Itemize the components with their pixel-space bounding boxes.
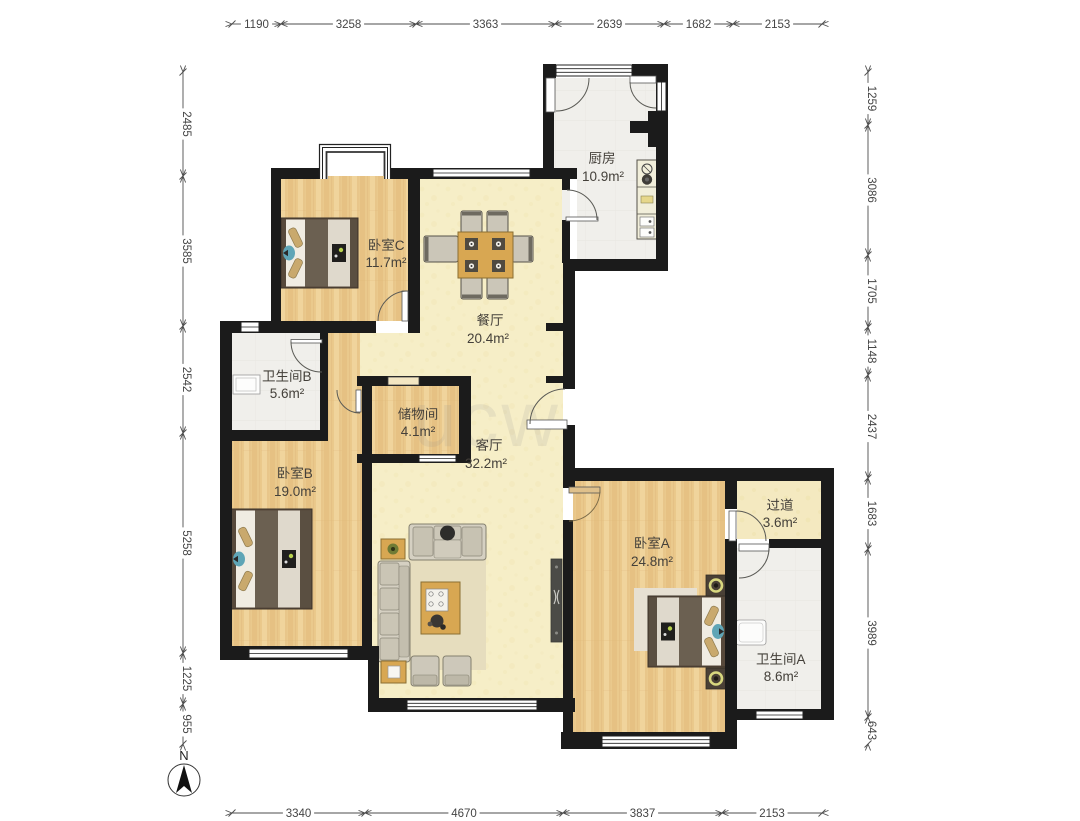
svg-text:11.7m²: 11.7m² <box>365 255 407 270</box>
svg-text:1682: 1682 <box>686 19 712 31</box>
svg-text:3086: 3086 <box>865 177 877 203</box>
svg-text:1190: 1190 <box>244 19 269 31</box>
svg-text:8.6m²: 8.6m² <box>764 669 799 684</box>
svg-text:32.2m²: 32.2m² <box>465 456 508 471</box>
svg-text:3363: 3363 <box>473 19 499 31</box>
svg-text:955: 955 <box>180 714 192 733</box>
svg-text:20.4m²: 20.4m² <box>467 331 510 346</box>
svg-text:3258: 3258 <box>336 19 362 31</box>
svg-text:10.9m²: 10.9m² <box>582 169 625 184</box>
svg-text:24.8m²: 24.8m² <box>631 554 674 569</box>
svg-text:1148: 1148 <box>865 339 877 364</box>
svg-text:5258: 5258 <box>180 530 192 556</box>
svg-text:2437: 2437 <box>865 414 877 440</box>
svg-text:2153: 2153 <box>765 19 791 31</box>
svg-text:5.6m²: 5.6m² <box>270 386 305 401</box>
svg-text:3837: 3837 <box>630 808 656 820</box>
svg-text:2639: 2639 <box>597 19 623 31</box>
svg-text:3989: 3989 <box>865 620 877 646</box>
svg-text:2485: 2485 <box>180 111 192 137</box>
svg-text:2153: 2153 <box>759 808 785 820</box>
svg-text:643: 643 <box>865 721 877 740</box>
svg-text:1683: 1683 <box>865 501 877 527</box>
svg-text:A: A <box>661 536 670 551</box>
svg-text:C: C <box>395 238 405 253</box>
svg-text:4.1m²: 4.1m² <box>401 424 436 439</box>
svg-text:1259: 1259 <box>865 86 877 112</box>
svg-text:3340: 3340 <box>286 808 312 820</box>
svg-text:B: B <box>303 369 312 384</box>
svg-text:3585: 3585 <box>180 238 192 264</box>
svg-text:B: B <box>304 466 313 481</box>
svg-text:19.0m²: 19.0m² <box>274 484 317 499</box>
svg-text:3.6m²: 3.6m² <box>763 515 798 530</box>
svg-text:2542: 2542 <box>180 367 192 393</box>
svg-text:4670: 4670 <box>451 808 477 820</box>
svg-text:N: N <box>179 748 188 763</box>
svg-text:1705: 1705 <box>865 278 877 304</box>
svg-text:A: A <box>797 652 806 667</box>
svg-text:1225: 1225 <box>180 666 192 692</box>
